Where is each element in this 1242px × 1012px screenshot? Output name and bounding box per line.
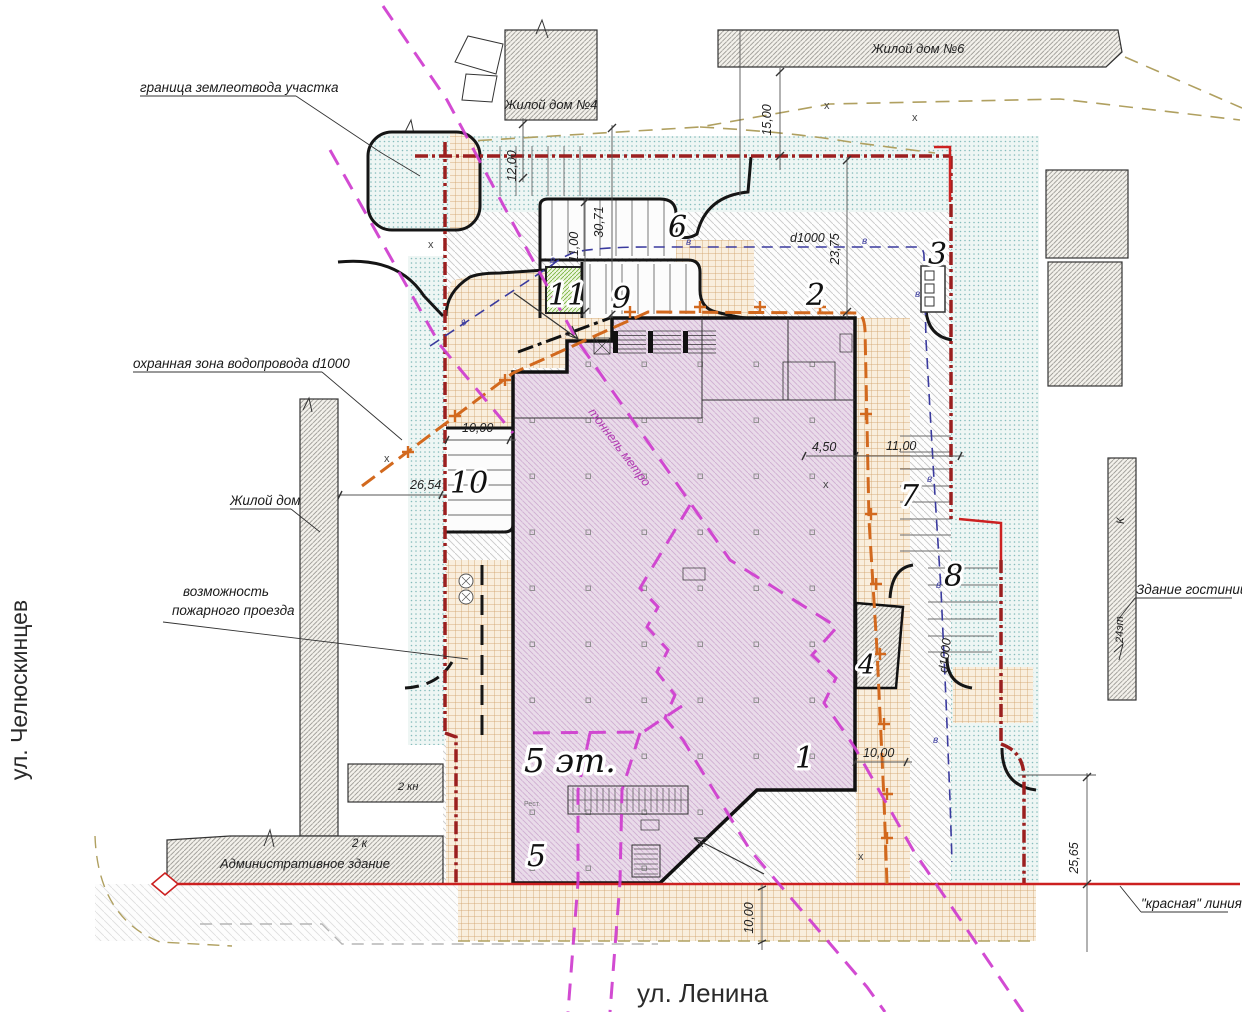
paving-se-patch bbox=[953, 667, 1033, 723]
zone-10: 10 bbox=[450, 466, 488, 501]
zone-3: 3 bbox=[928, 237, 947, 272]
water-mark-5: в bbox=[915, 289, 920, 300]
annotation-water-zone: охранная зона водопровода d1000 bbox=[133, 356, 350, 371]
label-house6: Жилой дом №6 bbox=[871, 41, 966, 56]
dim-12: 12,00 bbox=[505, 150, 519, 181]
zone-8: 8 bbox=[944, 559, 963, 594]
building-house4-annex bbox=[455, 36, 503, 102]
building-residential-west bbox=[300, 399, 338, 836]
dim-450: 4,50 bbox=[812, 440, 836, 454]
x-mark-5: х bbox=[858, 851, 864, 863]
zone-9: 9 bbox=[612, 281, 631, 316]
x-mark-4: х bbox=[823, 479, 829, 491]
parking-9-area bbox=[582, 262, 700, 318]
dim-10-right: 10,00 bbox=[863, 746, 894, 760]
x-mark-6: х bbox=[384, 453, 390, 465]
building-annex-2kn bbox=[348, 764, 443, 802]
dim-2654: 26,54 bbox=[409, 478, 441, 492]
dim-2565: 25,65 bbox=[1067, 842, 1081, 874]
survey-line-ne bbox=[1125, 57, 1242, 108]
greenery-band-top bbox=[415, 136, 951, 212]
street-label-chelyuskintsev: ул. Челюскинцев bbox=[6, 600, 32, 780]
zone-11: 11 bbox=[548, 278, 586, 313]
label-annex-storeys: 2 кн bbox=[397, 781, 418, 793]
zone-7: 7 bbox=[900, 479, 920, 514]
site-plan-canvas: ул. Ленина ул. Челюскинцев граница земле… bbox=[0, 0, 1242, 1012]
stair-core2 bbox=[648, 331, 653, 353]
street-band-sw bbox=[95, 884, 458, 941]
label-main-storeys: 5 эт. bbox=[524, 741, 616, 780]
blob-paving bbox=[450, 132, 480, 230]
annotation-residential: Жилой дом bbox=[229, 493, 301, 508]
leader-water-zone bbox=[133, 372, 402, 440]
dim-10-bottom: 10,00 bbox=[742, 902, 756, 933]
x-mark-1: х bbox=[428, 239, 434, 251]
label-admin-storeys: 2 к bbox=[351, 838, 368, 850]
dim-11-top: 11,00 bbox=[567, 232, 581, 262]
annotation-red-line: "красная" линия bbox=[1141, 896, 1242, 911]
site-plan-drawing: ул. Ленина ул. Челюскинцев граница земле… bbox=[0, 0, 1242, 1012]
label-tiny-room: Рест. bbox=[524, 801, 540, 808]
zone-6: 6 bbox=[668, 210, 687, 245]
greenery-strip-left bbox=[408, 256, 445, 745]
dim-11-right: 11,00 bbox=[886, 439, 916, 453]
annotation-fire2: пожарного проезда bbox=[172, 603, 295, 618]
dim-15: 15,00 bbox=[760, 104, 774, 135]
label-hotel-storeys: 24эт bbox=[1114, 616, 1126, 644]
water-mark-3: в bbox=[686, 237, 691, 248]
dim-3071: 30,71 bbox=[592, 206, 606, 237]
paving-w bbox=[446, 560, 513, 884]
water-mark-7: в bbox=[936, 580, 941, 591]
building-east2 bbox=[1048, 262, 1122, 386]
label-house4: Жилой дом №4 bbox=[504, 97, 598, 112]
label-admin: Административное здание bbox=[219, 856, 390, 871]
building-hotel bbox=[1108, 458, 1136, 700]
water-mark-4: в bbox=[862, 236, 867, 247]
water-mark-2: в bbox=[550, 255, 555, 266]
dim-2375: 23,75 bbox=[828, 233, 842, 265]
annotation-land-boundary: граница землеотвода участка bbox=[140, 80, 339, 95]
label-hotel-material: К bbox=[1115, 517, 1127, 524]
blob-greenery bbox=[368, 132, 450, 230]
x-mark-2: х bbox=[824, 100, 830, 112]
street-label-lenina: ул. Ленина bbox=[637, 978, 769, 1008]
dim-10-left: 10,00 bbox=[462, 421, 493, 435]
zone-4: 4 bbox=[857, 650, 875, 681]
stair-core3 bbox=[683, 331, 688, 353]
annotation-hotel: Здание гостиницы bbox=[1136, 582, 1242, 597]
boundary-blob bbox=[368, 132, 480, 230]
zone-2: 2 bbox=[805, 278, 825, 313]
zone-5: 5 bbox=[527, 839, 546, 874]
water-mark-6: в bbox=[927, 474, 932, 485]
x-mark-3: х bbox=[912, 112, 918, 124]
building-east1 bbox=[1046, 170, 1128, 258]
dim-d1000-h: d1000 bbox=[790, 231, 825, 245]
water-mark-8: в bbox=[933, 735, 938, 746]
annotation-fire1: возможность bbox=[183, 584, 269, 599]
stair-core1 bbox=[613, 331, 618, 353]
greenery-strip-right bbox=[951, 136, 1039, 884]
zone-1: 1 bbox=[795, 741, 814, 776]
parking-6-area bbox=[541, 200, 676, 258]
